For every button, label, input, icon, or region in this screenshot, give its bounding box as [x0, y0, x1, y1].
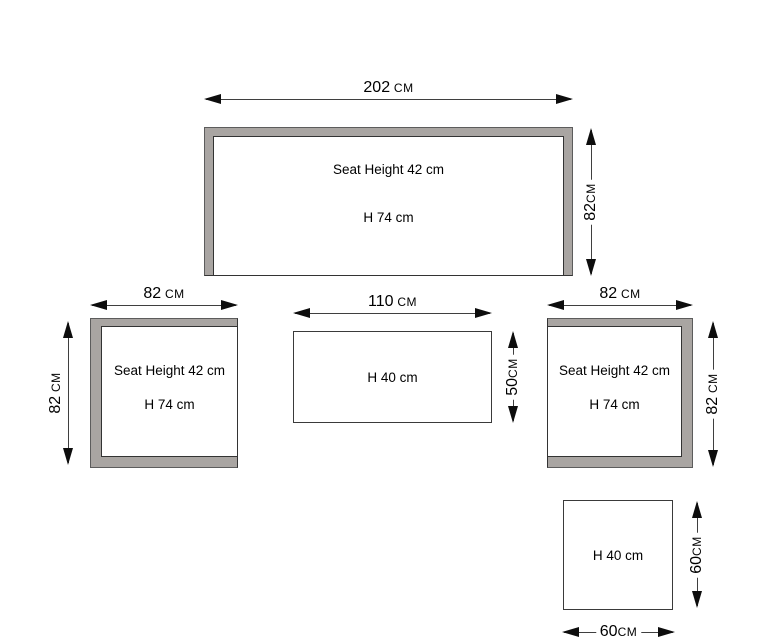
dimension-value: 82 [143, 285, 161, 302]
arrow-right-icon [676, 300, 693, 310]
arrow-up-icon [586, 128, 596, 145]
side-table-depth-label: 60CM [688, 532, 706, 577]
dimension-value: 82 [599, 285, 617, 302]
overall-height-label: H 40 cm [367, 370, 417, 385]
dimension-line [68, 323, 69, 463]
dimension-unit: CM [617, 287, 641, 301]
dimension-unit: CM [161, 287, 185, 301]
dimension-line [206, 99, 571, 100]
dimension-value: 82 [47, 396, 64, 414]
left-armchair-seat-area: Seat Height 42 cm H 74 cm [101, 326, 237, 457]
arrow-up-icon [63, 321, 73, 338]
furniture-dimensions-diagram: 202 CM Seat Height 42 cm H 74 cm 82CM 82… [0, 0, 763, 643]
dimension-line [295, 313, 490, 314]
dimension-unit: CM [706, 373, 720, 397]
side-table-shape: H 40 cm [563, 500, 673, 610]
arrow-right-icon [658, 627, 675, 637]
overall-height-label: H 40 cm [593, 548, 643, 563]
left-chair-width-label: 82 CM [143, 285, 184, 303]
dimension-value: 50 [504, 378, 521, 396]
right-armchair-seat-area: Seat Height 42 cm H 74 cm [548, 326, 682, 457]
dimension-unit: CM [690, 536, 704, 556]
sofa-seat-area: Seat Height 42 cm H 74 cm [213, 136, 564, 275]
coffee-table-shape: H 40 cm [293, 331, 492, 423]
arrow-left-icon [204, 94, 221, 104]
arrow-up-icon [508, 331, 518, 348]
seat-height-label: Seat Height 42 cm [102, 363, 237, 379]
arrow-down-icon [692, 591, 702, 608]
dimension-unit: CM [49, 372, 63, 396]
arrow-right-icon [221, 300, 238, 310]
dimension-unit: CM [506, 358, 520, 378]
arrow-down-icon [508, 406, 518, 423]
sofa-depth-label: 82CM [582, 179, 600, 224]
arrow-down-icon [63, 448, 73, 465]
side-table-width-label: 60CM [596, 623, 641, 641]
sofa-shape: Seat Height 42 cm H 74 cm [204, 127, 573, 276]
arrow-left-icon [90, 300, 107, 310]
coffee-table-width-label: 110 CM [368, 293, 417, 311]
dimension-value: 60 [688, 555, 705, 573]
overall-height-label: H 74 cm [214, 210, 563, 226]
dimension-value: 82 [582, 203, 599, 221]
sofa-width-label: 202 CM [363, 79, 413, 97]
dimension-value: 110 [368, 293, 394, 310]
arrow-right-icon [475, 308, 492, 318]
right-chair-width-label: 82 CM [599, 285, 640, 303]
arrow-left-icon [293, 308, 310, 318]
seat-height-label: Seat Height 42 cm [214, 162, 563, 178]
dimension-unit: CM [390, 81, 414, 95]
dimension-value: 60 [600, 623, 618, 640]
arrow-down-icon [708, 450, 718, 467]
overall-height-label: H 74 cm [548, 397, 681, 413]
dimension-unit: CM [618, 625, 638, 639]
arrow-up-icon [708, 321, 718, 338]
dimension-unit: CM [584, 183, 598, 203]
left-armchair-shape: Seat Height 42 cm H 74 cm [90, 318, 238, 468]
right-chair-depth-label: 82 CM [704, 369, 722, 418]
dimension-line [92, 305, 236, 306]
left-chair-depth-label: 82 CM [47, 372, 65, 413]
arrow-down-icon [586, 259, 596, 276]
arrow-left-icon [547, 300, 564, 310]
dimension-value: 82 [704, 397, 721, 415]
coffee-table-depth-label: 50CM [504, 354, 522, 399]
overall-height-label: H 74 cm [102, 397, 237, 413]
dimension-unit: CM [394, 295, 418, 309]
dimension-line [549, 305, 691, 306]
seat-height-label: Seat Height 42 cm [548, 363, 681, 379]
dimension-value: 202 [363, 79, 390, 96]
arrow-left-icon [562, 627, 579, 637]
arrow-up-icon [692, 501, 702, 518]
right-armchair-shape: Seat Height 42 cm H 74 cm [547, 318, 693, 468]
arrow-right-icon [556, 94, 573, 104]
